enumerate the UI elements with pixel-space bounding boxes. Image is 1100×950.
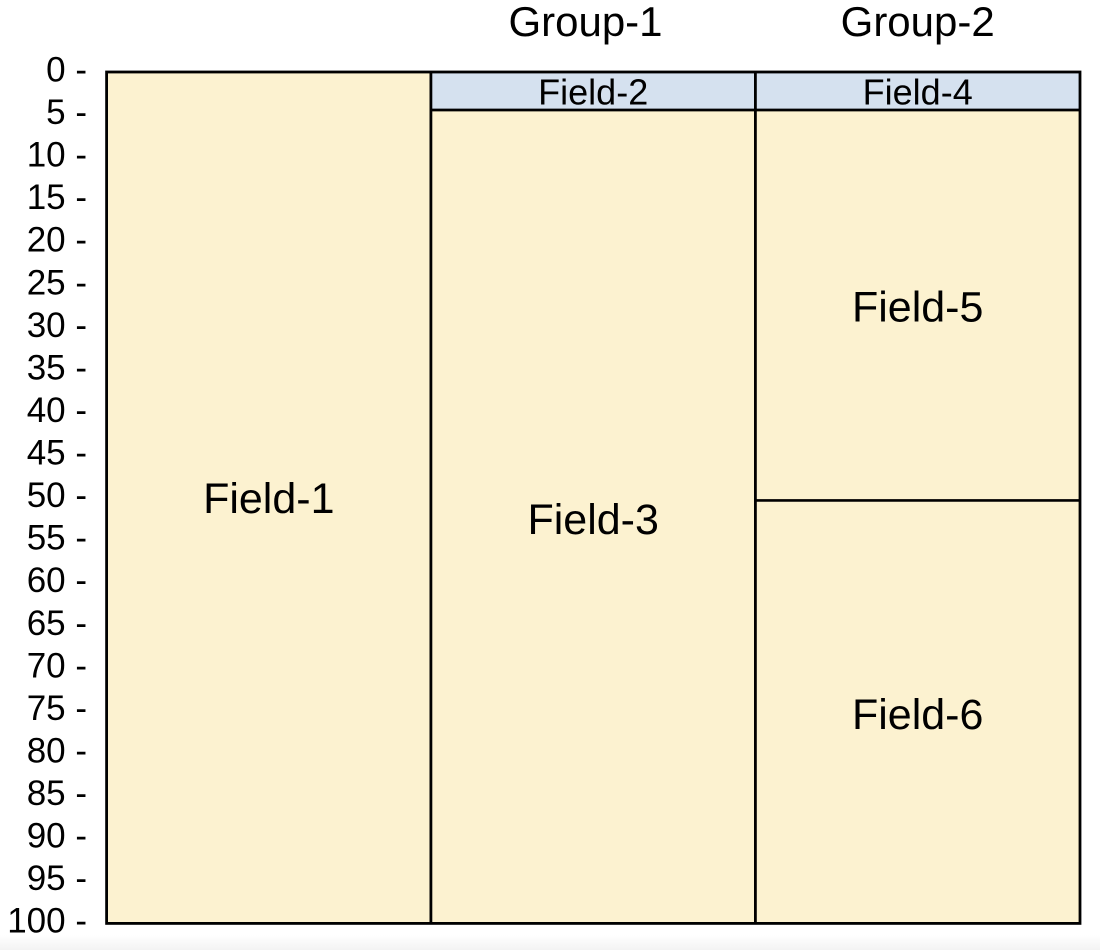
svg-text:Field-6: Field-6 <box>852 691 983 739</box>
svg-text:20 -: 20 - <box>27 221 87 260</box>
svg-text:Group-2: Group-2 <box>841 0 995 45</box>
svg-text:15 -: 15 - <box>27 178 87 217</box>
svg-text:55 -: 55 - <box>27 519 87 558</box>
svg-text:30 -: 30 - <box>27 306 87 345</box>
svg-text:70 -: 70 - <box>27 646 87 685</box>
svg-text:75 -: 75 - <box>27 689 87 728</box>
svg-text:Field-3: Field-3 <box>527 496 658 544</box>
svg-text:100 -: 100 - <box>7 902 87 941</box>
svg-text:25 -: 25 - <box>27 263 87 302</box>
svg-text:65 -: 65 - <box>27 604 87 643</box>
svg-text:35 -: 35 - <box>27 348 87 387</box>
svg-text:95 -: 95 - <box>27 859 87 898</box>
svg-text:Field-1: Field-1 <box>203 475 334 523</box>
svg-text:Group-1: Group-1 <box>508 0 662 45</box>
svg-text:5 -: 5 - <box>46 93 87 132</box>
svg-text:60 -: 60 - <box>27 561 87 600</box>
svg-text:85 -: 85 - <box>27 774 87 813</box>
svg-text:Field-2: Field-2 <box>538 71 648 112</box>
svg-text:0 -: 0 - <box>46 51 87 90</box>
svg-text:Field-4: Field-4 <box>863 71 973 112</box>
svg-text:45 -: 45 - <box>27 434 87 473</box>
svg-text:40 -: 40 - <box>27 391 87 430</box>
svg-text:Field-5: Field-5 <box>852 284 983 332</box>
svg-text:50 -: 50 - <box>27 476 87 515</box>
svg-text:10 -: 10 - <box>27 136 87 175</box>
svg-text:90 -: 90 - <box>27 817 87 856</box>
svg-text:80 -: 80 - <box>27 732 87 771</box>
